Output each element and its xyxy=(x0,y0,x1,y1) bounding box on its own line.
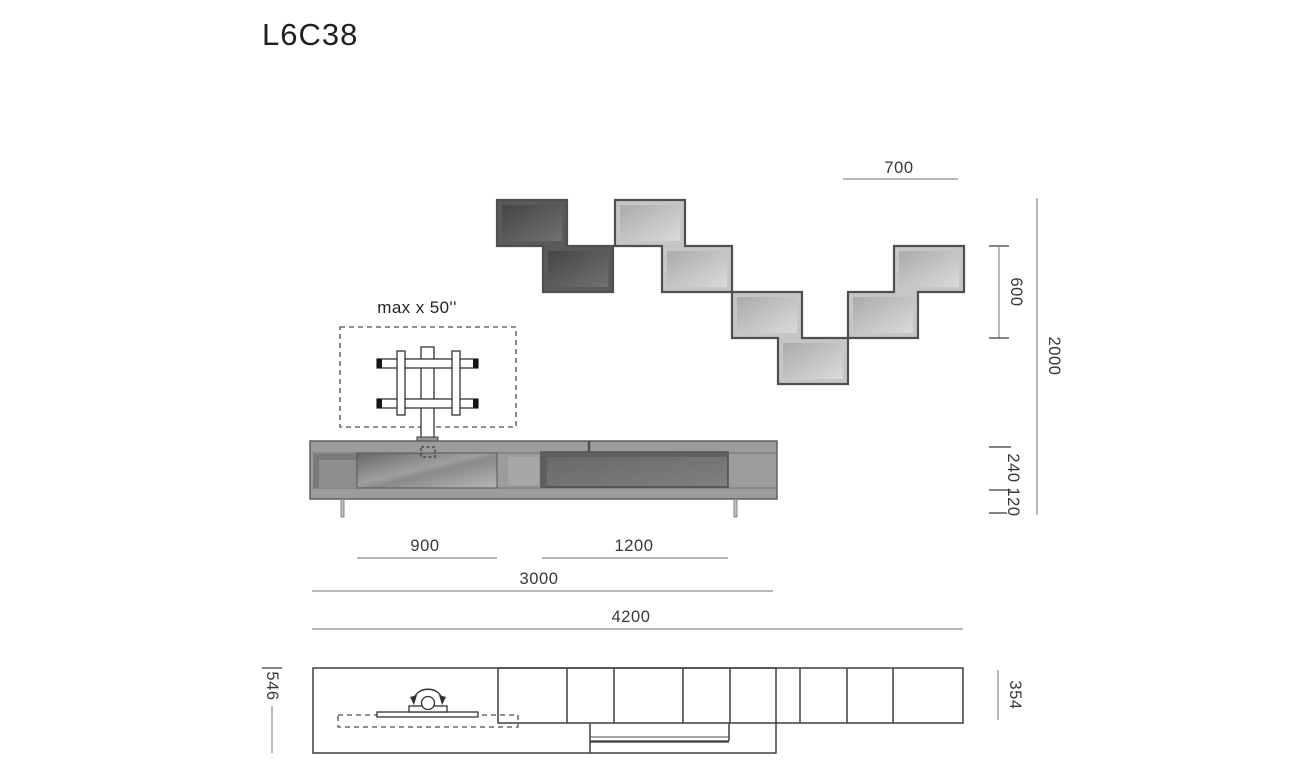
dimension-546: 546 xyxy=(262,668,282,753)
tv-mount-elevation: max x 50'' xyxy=(340,298,516,442)
tv-mount-bar-top-cap-left xyxy=(377,359,382,368)
module-3-inner-bottom xyxy=(783,343,843,379)
module-2-inner-bottom xyxy=(667,251,727,287)
dimension-2000: 2000 xyxy=(1037,198,1063,515)
dim-240-label: 240 xyxy=(1004,453,1022,482)
tv-mount-slat-left xyxy=(397,351,405,415)
module-1-inner-top xyxy=(502,205,562,241)
module-4-inner-bottom xyxy=(853,297,913,333)
plan-tv-bracket xyxy=(338,689,518,727)
dim-120-label: 120 xyxy=(1004,487,1022,516)
dimension-700: 700 xyxy=(843,159,958,179)
rotation-arrowhead-right xyxy=(439,695,446,705)
dim-3000-label: 3000 xyxy=(519,570,558,588)
dim-4200-label: 4200 xyxy=(611,608,650,626)
dim-1200-label: 1200 xyxy=(614,537,653,555)
tv-max-size-note: max x 50'' xyxy=(377,298,456,317)
tv-mount-bar-top xyxy=(377,359,478,368)
module-2-inner-top xyxy=(620,205,680,241)
cabinet-elevation xyxy=(310,441,777,517)
rotation-arrowhead-left xyxy=(410,695,417,705)
tv-mount-bar-bottom-cap-left xyxy=(377,399,382,408)
cabinet-dark-panel xyxy=(541,452,728,487)
dimension-600: 600 xyxy=(989,246,1025,338)
cabinet-leg-left xyxy=(341,499,344,517)
dimension-354: 354 xyxy=(998,670,1024,720)
dim-600-label: 600 xyxy=(1007,277,1025,306)
dimension-3000: 3000 xyxy=(312,570,773,591)
cabinet-leg-right xyxy=(734,499,737,517)
wall-module-light-1 xyxy=(615,200,732,292)
cabinet-middle-inset xyxy=(508,457,539,485)
wall-modules-elevation xyxy=(497,200,964,384)
dim-700-label: 700 xyxy=(884,159,913,177)
plan-open-drawer xyxy=(590,723,729,753)
plan-view: 546 354 xyxy=(262,668,1024,753)
dim-2000-label: 2000 xyxy=(1045,336,1063,375)
page-title: L6C38 xyxy=(262,17,358,52)
tv-mount-slat-right xyxy=(452,351,460,415)
dim-546-label: 546 xyxy=(263,671,281,700)
tv-mount-bar-top-cap-right xyxy=(473,359,478,368)
wall-module-dark xyxy=(497,200,613,292)
plan-wall-row-dividers xyxy=(567,668,893,723)
wall-module-light-3 xyxy=(848,246,964,338)
dim-900-label: 900 xyxy=(410,537,439,555)
dimension-240: 240 xyxy=(989,447,1022,490)
tv-mount-bar-bottom-cap-right xyxy=(473,399,478,408)
tv-mount-bar-bottom xyxy=(377,399,478,408)
dim-354-label: 354 xyxy=(1006,680,1024,709)
module-4-inner-top xyxy=(899,251,959,287)
dimension-900: 900 xyxy=(357,537,497,558)
cabinet-gloss-panel xyxy=(357,453,497,488)
drawing-canvas: L6C38 700 xyxy=(0,0,1300,781)
dimension-120: 120 xyxy=(989,487,1022,516)
dimension-1200: 1200 xyxy=(542,537,728,558)
plan-tv-pivot xyxy=(422,697,435,710)
plan-tv-plate xyxy=(377,712,478,717)
wall-module-light-2 xyxy=(732,292,848,384)
module-1-inner-bottom xyxy=(548,251,608,287)
technical-drawing-page: L6C38 700 xyxy=(0,0,1300,781)
dimension-4200: 4200 xyxy=(312,608,963,629)
module-3-inner-top xyxy=(737,297,797,333)
